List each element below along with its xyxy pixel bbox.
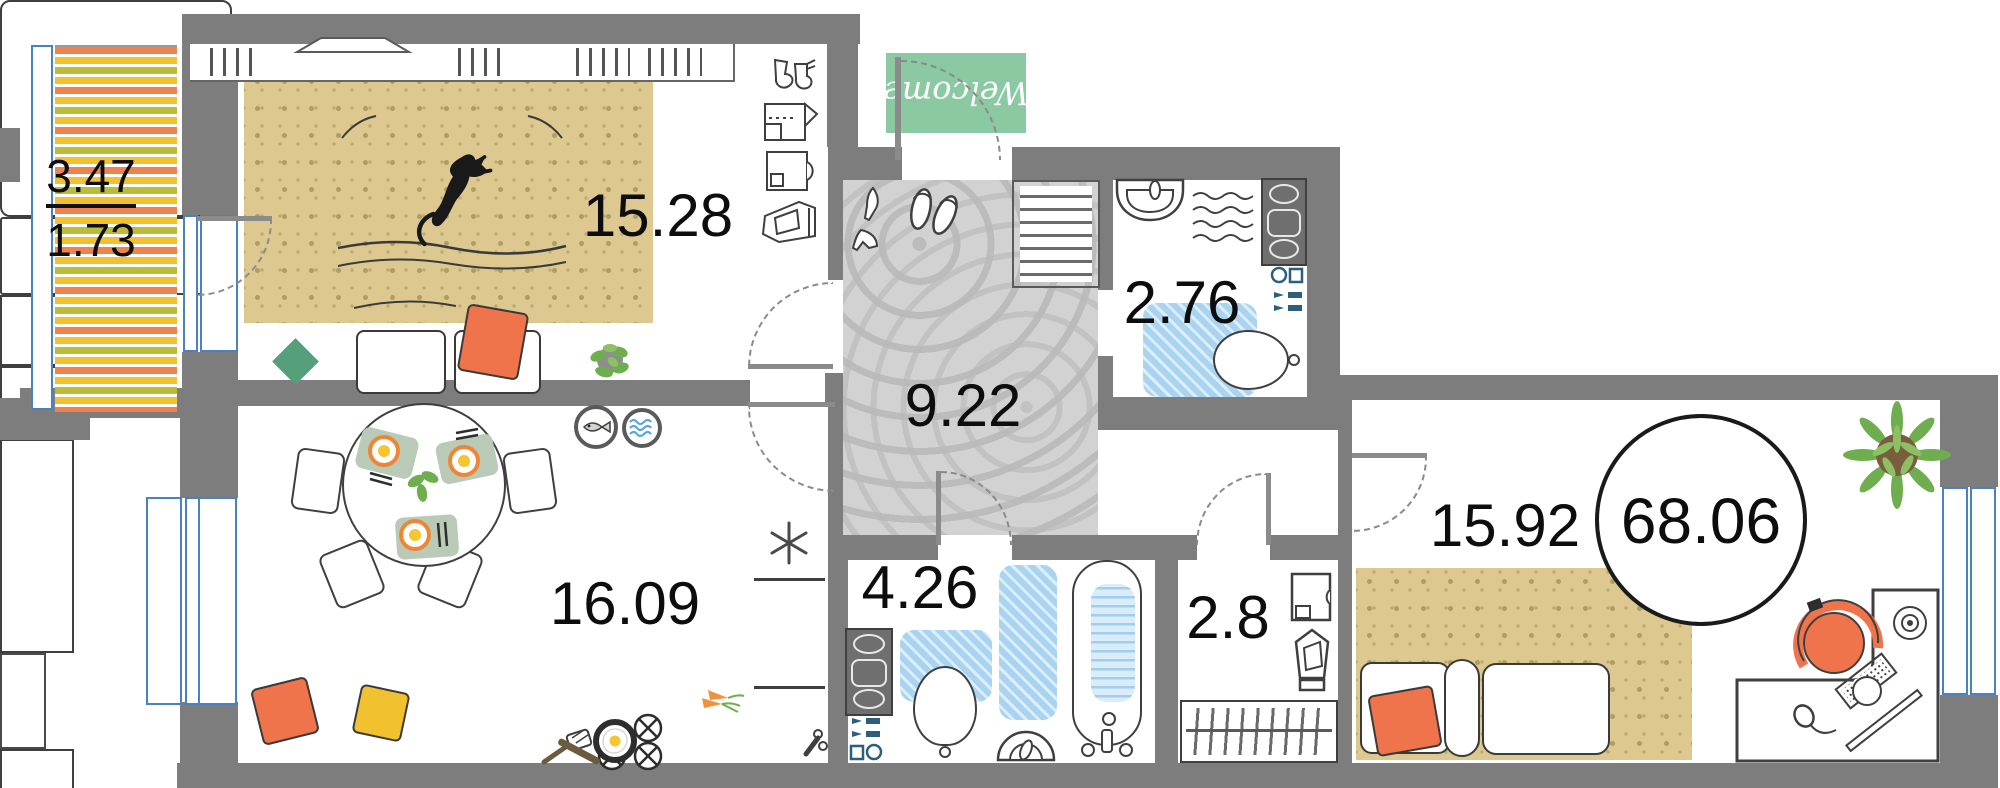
toilet-bath-button — [939, 746, 951, 758]
wall-wc-top-right — [1307, 180, 1340, 397]
laundry-icons-top — [1270, 266, 1308, 314]
floor-plan: 3.47 1.73 — [0, 0, 2000, 788]
carrots-icon — [694, 688, 746, 720]
dining-chair-left — [290, 447, 346, 515]
scale-icon — [994, 710, 1058, 762]
wall-wc-top-bottom — [1098, 397, 1352, 430]
wall-kitchen-left-upper — [180, 408, 238, 498]
monitor-stand — [1852, 676, 1882, 706]
total-area-label: 68.06 — [1621, 489, 1781, 553]
wall-right-upper — [1940, 375, 1998, 487]
hallway-area-label: 9.22 — [905, 376, 1022, 436]
laundry-icons-bath — [848, 714, 886, 762]
toilet-bath-bowl — [913, 666, 977, 746]
washer-dark-top-detail — [1261, 178, 1307, 266]
kitchen-window-outer — [146, 497, 182, 705]
storage-area-label: 2.8 — [1186, 588, 1269, 648]
wall-bath-storage — [1155, 560, 1178, 763]
bed2-pillow-orange — [1367, 685, 1443, 758]
cat-icon — [405, 148, 495, 253]
green-diamond-decor — [272, 338, 319, 385]
bathtub-faucet-icon — [1078, 728, 1136, 758]
bench-pillow-left — [356, 330, 446, 394]
sofa-pillow-orange — [250, 676, 320, 746]
sink-divider — [754, 686, 825, 689]
fridge-divider — [754, 578, 825, 581]
bedroom2-window-a — [1942, 487, 1968, 695]
plates-and-cutlery — [342, 403, 506, 567]
waves-icon — [629, 418, 655, 438]
bath-mat-tub — [999, 565, 1057, 720]
balcony-fraction-line — [46, 204, 136, 208]
sofa-pillow-yellow — [351, 683, 410, 742]
wall-hall-bottom-b — [1012, 535, 1197, 560]
hallway-radiator — [1012, 180, 1100, 288]
storage-rail-bar — [1186, 729, 1332, 732]
ceiling-shelf-icon — [295, 36, 411, 54]
fried-egg-icon — [601, 727, 629, 755]
bedroom2-door-arc — [1352, 458, 1427, 532]
fridge-asterisk-icon — [767, 521, 811, 565]
bed2-duvet — [1482, 663, 1610, 755]
bedroom1-wardrobe — [0, 439, 74, 653]
wall-top-bedroom1 — [185, 14, 860, 44]
wall-outer-left-step — [0, 128, 20, 182]
hanger-ticks-3 — [576, 48, 630, 76]
corner-sink-icon — [1115, 178, 1185, 222]
wall-wc-top-left-a — [1098, 180, 1113, 290]
wall-entry-vertical — [827, 44, 858, 147]
storage-clothes-rail — [1180, 700, 1338, 763]
wall-entry-right — [1012, 147, 1340, 180]
toilet-top-bowl — [1213, 330, 1289, 390]
speaker-dot — [1907, 620, 1913, 626]
bag-icon — [759, 196, 821, 246]
bath-area-label: 4.26 — [862, 558, 979, 618]
bench-pillow-orange — [457, 303, 530, 381]
storage-door-leaf — [1266, 473, 1271, 545]
wall-wc-top-left-b — [1098, 356, 1113, 397]
socks-icon — [763, 56, 817, 96]
tshirt-icon — [763, 150, 817, 192]
dining-chair-right — [502, 447, 558, 515]
storage-door-arc — [1196, 473, 1266, 545]
hanger-ticks-4 — [648, 48, 702, 76]
mouse-icon — [1790, 700, 1840, 742]
shirt-icon — [761, 100, 819, 144]
bed2-blanket-roll — [1444, 659, 1480, 757]
hanger-ticks-1 — [210, 48, 254, 76]
washer-dark-bath-detail — [845, 628, 893, 716]
kitchen-window-divider — [198, 499, 200, 703]
balcony-area-lower: 1.73 — [46, 217, 136, 263]
balcony-door-panel-small — [183, 215, 198, 352]
vacuum-icon — [1292, 628, 1332, 694]
toilet-top-button — [1288, 354, 1300, 366]
kitchen-window-inner — [185, 497, 237, 705]
bathtub-water — [1085, 578, 1141, 708]
bedroom1-door-arc — [748, 282, 833, 367]
wall-storage-bedroom2 — [1338, 430, 1352, 763]
balcony-area-upper: 3.47 — [46, 153, 136, 199]
desk-chair-seat — [1803, 612, 1865, 674]
wc-top-area-label: 2.76 — [1124, 273, 1241, 333]
bedroom1-area-label: 15.28 — [583, 186, 733, 246]
wall-right-lower — [1940, 695, 1998, 763]
shoes-pair-icon — [905, 185, 963, 237]
wall-top-bedroom2 — [1340, 375, 1940, 400]
plant-large-icon — [1847, 405, 1947, 505]
shoe-cabinet — [0, 653, 46, 749]
bedroom2-area-label: 15.92 — [1430, 496, 1580, 556]
towel-dryer — [0, 749, 74, 788]
hanger-ticks-2 — [458, 48, 502, 76]
kitchen-faucet-icon — [790, 724, 830, 764]
wall-entry-left — [843, 147, 902, 180]
kitchen-area-label: 16.09 — [550, 574, 700, 634]
fish-icon — [580, 418, 614, 436]
storage-box-icon — [1290, 572, 1332, 624]
wall-bottom-outer — [177, 763, 1998, 788]
kitchen-door-arc — [748, 407, 835, 492]
heels-icon — [851, 186, 885, 266]
towel-dryer-waves — [1191, 190, 1253, 250]
wall-kitchen-left-lower — [180, 702, 238, 764]
plant-small-icon — [588, 338, 632, 384]
bedroom2-window-b — [1970, 487, 1996, 695]
bathtub-drain — [1102, 712, 1116, 726]
